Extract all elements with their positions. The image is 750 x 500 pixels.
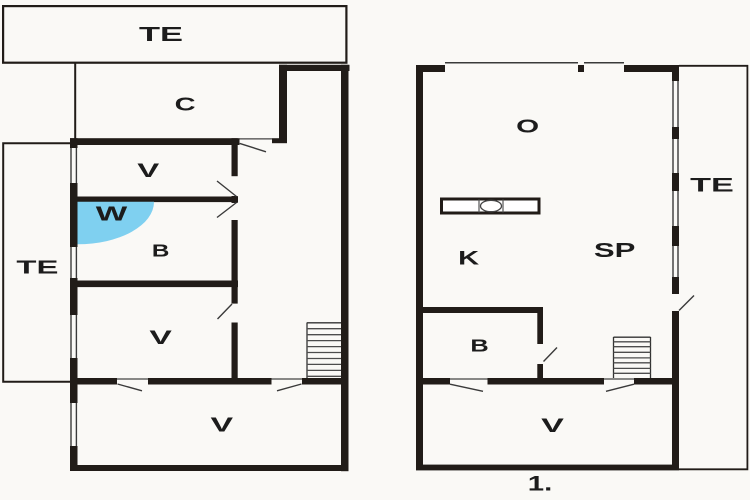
svg-text:V: V: [541, 415, 564, 437]
svg-text:1.: 1.: [528, 473, 553, 496]
svg-text:B: B: [152, 240, 170, 260]
svg-text:K: K: [458, 249, 479, 270]
svg-text:V: V: [211, 415, 235, 437]
svg-text:W: W: [96, 204, 128, 226]
svg-text:O: O: [516, 116, 539, 137]
svg-text:SP: SP: [594, 240, 636, 262]
svg-text:TE: TE: [139, 23, 183, 46]
svg-text:C: C: [175, 94, 196, 115]
svg-text:V: V: [149, 328, 172, 349]
svg-text:TE: TE: [690, 174, 734, 196]
svg-text:TE: TE: [16, 257, 58, 278]
svg-text:B: B: [470, 335, 488, 355]
svg-text:V: V: [137, 161, 159, 182]
